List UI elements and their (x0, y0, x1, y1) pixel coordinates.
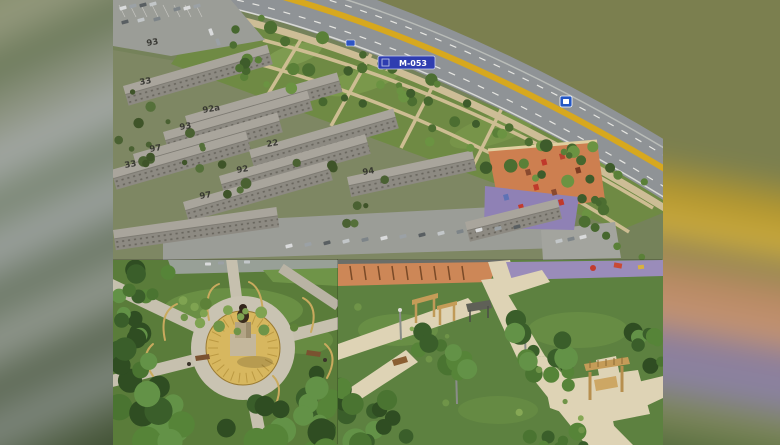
tree (424, 96, 434, 106)
tree (237, 186, 244, 193)
tree (114, 313, 129, 328)
tree (223, 305, 233, 315)
monument-plaza-render (113, 260, 338, 445)
tree (113, 337, 136, 360)
tree (145, 102, 155, 112)
building-number-label: 94 (362, 166, 375, 178)
tree (255, 396, 275, 416)
building-number-label: 22 (266, 138, 279, 150)
tree (134, 381, 160, 407)
tree (235, 64, 243, 72)
tree (376, 80, 385, 89)
tree (230, 41, 238, 49)
tree (286, 83, 298, 95)
trash-bin (323, 358, 327, 362)
tree (319, 97, 328, 106)
building-number-label: 33 (139, 76, 152, 88)
tree (504, 159, 518, 173)
tree (519, 352, 538, 371)
tree (536, 367, 543, 374)
tree (354, 303, 362, 311)
tree (563, 399, 568, 404)
tree (445, 344, 462, 361)
tree (302, 63, 315, 76)
tree (591, 223, 600, 232)
tree (195, 164, 204, 173)
tree (217, 419, 236, 438)
tree (181, 314, 188, 321)
tree (305, 376, 328, 399)
tree (263, 81, 270, 88)
tree (653, 336, 663, 346)
tree (516, 409, 523, 416)
blurred-left-edge (0, 0, 113, 445)
tree (130, 89, 135, 94)
lawn-patch (528, 312, 628, 348)
building-number-label: 33 (124, 159, 137, 171)
route-sign: М-053 (378, 56, 435, 69)
tree (179, 296, 188, 305)
tree (190, 303, 198, 311)
tree (425, 137, 435, 147)
tree (290, 323, 298, 331)
tree (399, 429, 414, 444)
tree (554, 331, 572, 349)
tree (133, 118, 143, 128)
tree (428, 124, 436, 132)
tree (316, 31, 329, 44)
tree (195, 318, 205, 328)
tree (602, 232, 610, 240)
tree (457, 359, 477, 379)
tree (161, 265, 176, 280)
building-number-label: 92 (236, 164, 249, 176)
tree (579, 216, 591, 228)
project-render-montage: 93 33 92а 93 97 33 22 92 97 94 М-053 (0, 0, 780, 445)
tree (147, 288, 159, 300)
tree (363, 203, 368, 208)
tree (449, 116, 460, 127)
monument-scene (113, 260, 338, 445)
tree (587, 141, 598, 152)
tree (613, 171, 622, 180)
tree (380, 175, 389, 184)
tree (578, 427, 585, 434)
tree (258, 325, 269, 336)
tree (258, 15, 265, 22)
tree (182, 160, 187, 165)
tree (376, 419, 392, 435)
tree (576, 155, 586, 165)
blurred-right-edge (663, 0, 780, 445)
tree (543, 367, 559, 383)
tree (554, 346, 578, 370)
tree (357, 63, 367, 73)
tree (142, 160, 149, 167)
tree (199, 143, 205, 149)
tree (329, 164, 338, 173)
tree (287, 63, 299, 75)
tree (472, 120, 480, 128)
tree (426, 356, 433, 363)
tree (341, 94, 348, 101)
tree (605, 163, 615, 173)
building-number-label: 93 (179, 121, 192, 133)
tree (350, 219, 358, 227)
tree (525, 138, 533, 146)
tree (561, 149, 568, 156)
tree (231, 25, 239, 33)
tree (561, 175, 574, 188)
tree (343, 66, 353, 76)
tree (237, 313, 244, 320)
tree (519, 159, 529, 169)
tree (280, 36, 290, 46)
tree (480, 162, 492, 174)
tree (463, 99, 471, 107)
tree (218, 160, 227, 169)
tree (123, 284, 136, 297)
car (244, 261, 250, 264)
tree (140, 353, 157, 370)
tree (641, 178, 648, 185)
tree (127, 264, 146, 283)
tree (445, 334, 450, 339)
tree (613, 243, 621, 251)
bus-stop-icon (560, 96, 572, 107)
park-paths-render (338, 260, 663, 445)
aerial-scene: 93 33 92а 93 97 33 22 92 97 94 М-053 (113, 0, 663, 260)
tree (200, 309, 208, 317)
tree (540, 139, 553, 152)
tree (396, 87, 403, 94)
tree (596, 200, 602, 206)
tree (410, 327, 415, 332)
tree (342, 219, 351, 228)
tree (505, 323, 525, 343)
car (218, 262, 224, 265)
building-number-label: 93 (146, 37, 159, 49)
tree (200, 298, 212, 310)
tree (505, 123, 514, 132)
trash-bin (187, 362, 191, 366)
tree (272, 400, 290, 418)
tree (585, 175, 594, 184)
tree (497, 129, 507, 139)
tree (523, 430, 537, 444)
tree (255, 56, 262, 63)
tree (234, 328, 242, 336)
tree (213, 321, 225, 333)
tree (578, 415, 584, 421)
aerial-view-render: 93 33 92а 93 97 33 22 92 97 94 М-053 (113, 0, 663, 260)
tree (442, 399, 449, 406)
tree (562, 379, 575, 392)
tree (242, 308, 248, 314)
tree (419, 334, 438, 353)
tree (264, 21, 277, 34)
tree (293, 406, 313, 426)
route-sign-label: М-053 (399, 59, 427, 68)
tree (377, 390, 397, 410)
building-number-label: 97 (149, 143, 162, 155)
tree (114, 136, 123, 145)
tree (359, 99, 367, 107)
building-number-label: 97 (199, 190, 212, 202)
tree (223, 190, 232, 199)
tree (255, 307, 267, 319)
paths-scene (338, 260, 663, 445)
tree (406, 89, 415, 98)
tree (577, 194, 586, 203)
car (205, 263, 211, 266)
tree (631, 338, 644, 351)
tree (293, 159, 301, 167)
tree (466, 144, 474, 152)
tree (434, 81, 441, 88)
tree (642, 358, 658, 374)
tree (353, 201, 362, 210)
tree (359, 51, 367, 59)
lawn-patch (458, 396, 538, 424)
tree (129, 146, 135, 152)
tree (166, 119, 171, 124)
small-road-sign (346, 40, 355, 46)
tree (537, 170, 546, 179)
